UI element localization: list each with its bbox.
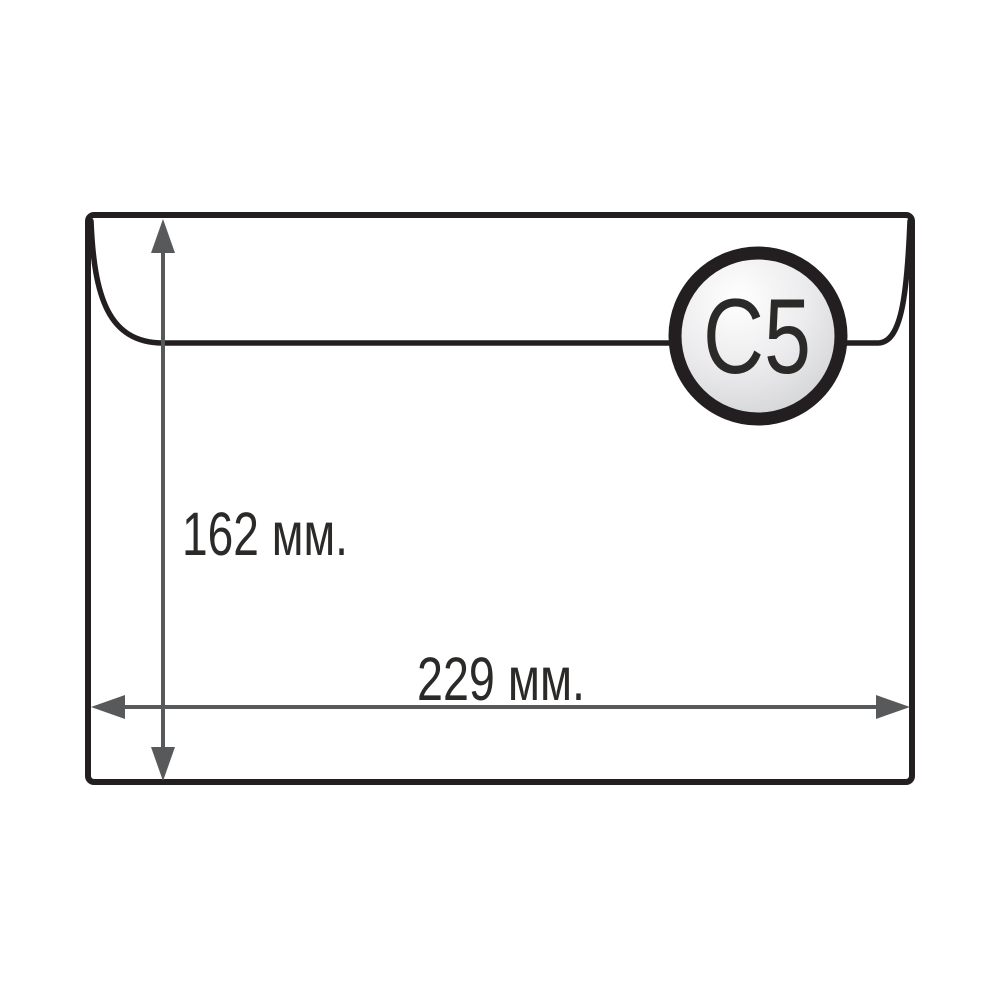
height-dimension-label: 162 мм. bbox=[182, 500, 348, 568]
envelope-size-diagram: 162 мм. 229 мм. C5 bbox=[0, 0, 1000, 1000]
size-badge: C5 bbox=[675, 253, 841, 419]
size-badge-label: C5 bbox=[703, 276, 811, 396]
width-dimension-label: 229 мм. bbox=[417, 645, 585, 713]
diagram-canvas: 162 мм. 229 мм. C5 bbox=[0, 0, 1000, 1000]
